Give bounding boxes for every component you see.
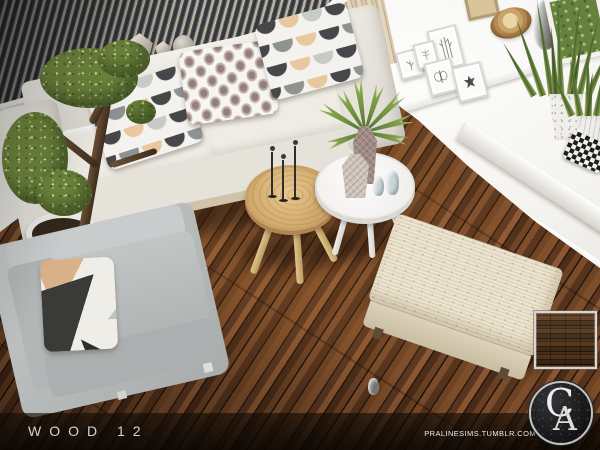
tree-foliage-sprig bbox=[126, 100, 156, 124]
candlestick bbox=[271, 152, 273, 196]
snake-plant-leaf bbox=[592, 60, 600, 117]
picture-frame-maple-leaf bbox=[451, 61, 489, 103]
candlestick bbox=[282, 160, 284, 200]
textured-vase-short bbox=[342, 154, 369, 198]
glass-vase-small bbox=[373, 176, 384, 196]
tree-foliage-upper-right bbox=[98, 40, 150, 78]
bench-foot bbox=[498, 367, 510, 380]
footer-bar: WOOD 12 PRALINESIMS.TUMBLR.COM bbox=[0, 413, 600, 450]
creation-title: WOOD 12 bbox=[28, 423, 149, 439]
geometric-pattern-pillow bbox=[40, 257, 119, 353]
glass-votive bbox=[368, 378, 379, 395]
glass-vase-large bbox=[386, 170, 399, 195]
logo-letter-a: A bbox=[553, 399, 577, 438]
candlestick bbox=[294, 146, 296, 198]
wood-texture-swatch bbox=[534, 311, 597, 369]
tree-foliage-lower bbox=[36, 170, 92, 216]
cc-preview-render: WOOD 12 PRALINESIMS.TUMBLR.COM C A bbox=[0, 0, 600, 450]
table-leg bbox=[293, 232, 304, 284]
bench-foot bbox=[372, 327, 384, 340]
table-leg bbox=[250, 225, 274, 274]
watermark-url: PRALINESIMS.TUMBLR.COM bbox=[424, 429, 536, 438]
tree-branch-right bbox=[110, 148, 158, 169]
table-leg bbox=[366, 214, 375, 258]
creator-logo: C A bbox=[529, 381, 593, 445]
